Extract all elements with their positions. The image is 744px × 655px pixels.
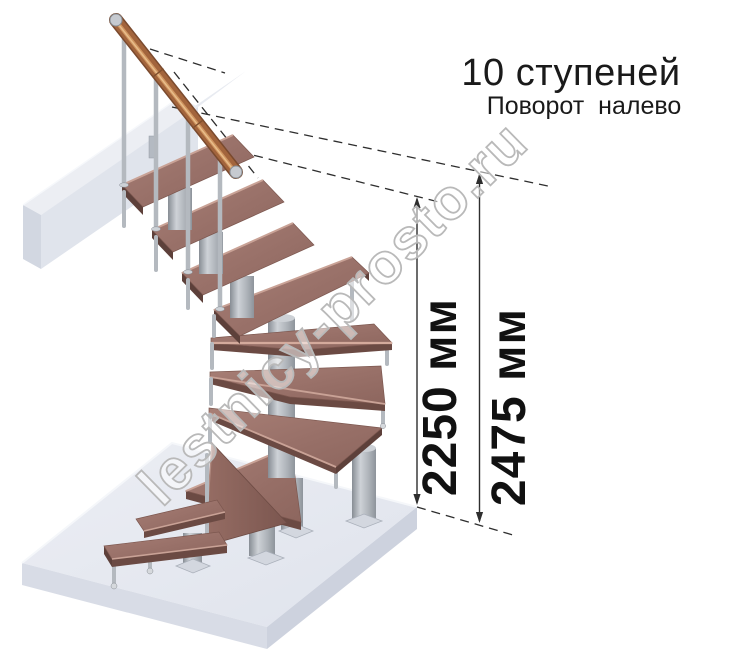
support-column	[230, 276, 254, 318]
dashed-extension-line	[417, 507, 513, 535]
arrowhead-down	[476, 512, 483, 523]
staircase-illustration: 2250 мм 2475 мм 10 ступеней Поворот нале…	[0, 0, 744, 655]
handrail-end-cap	[230, 166, 242, 178]
step-leg-foot	[147, 568, 153, 574]
step-leg-foot	[111, 583, 117, 589]
dimension-label-inner: 2250 мм	[414, 298, 467, 496]
page-title: 10 ступеней	[461, 52, 680, 94]
baluster-ball	[380, 423, 385, 428]
dimension-label-outer: 2475 мм	[483, 308, 536, 506]
beam-left-face	[23, 205, 41, 269]
handrail-end-cap	[110, 14, 122, 26]
dimension-outer-2475: 2475 мм	[476, 173, 536, 523]
baluster-base	[120, 183, 129, 187]
support-column	[352, 448, 376, 518]
baluster-base	[184, 270, 193, 274]
baluster-base	[152, 227, 161, 231]
baluster-base	[216, 307, 225, 311]
page-subtitle: Поворот налево	[487, 92, 682, 120]
screenshot-root: 2250 мм 2475 мм 10 ступеней Поворот нале…	[0, 0, 744, 655]
